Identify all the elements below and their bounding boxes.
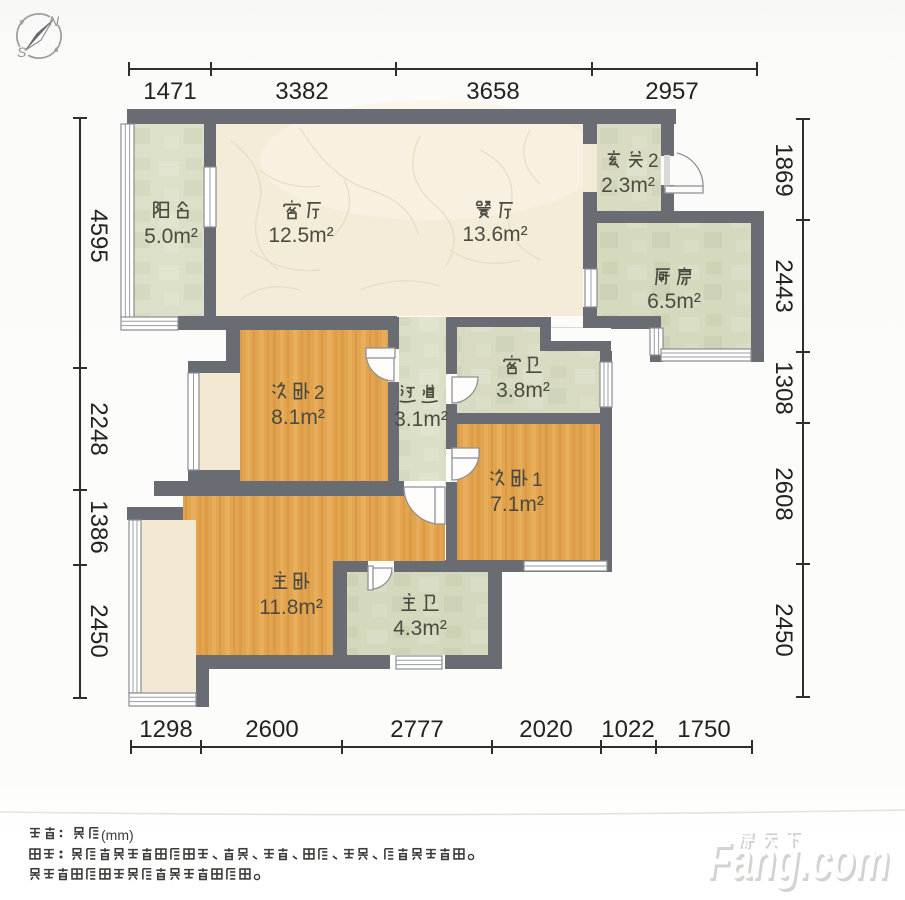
svg-text:6.5m²: 6.5m² [647,290,701,313]
svg-text:3.1m²: 3.1m² [394,408,448,431]
svg-text:2443: 2443 [770,259,797,312]
svg-text:2957: 2957 [645,78,698,105]
svg-text:S: S [17,44,27,60]
svg-text:1308: 1308 [770,361,797,414]
svg-text:4595: 4595 [85,209,112,262]
svg-text:4.3m²: 4.3m² [393,617,447,640]
svg-text:1869: 1869 [770,143,797,196]
svg-text:2777: 2777 [390,716,443,743]
svg-text:1386: 1386 [85,500,112,553]
svg-text:13.6m²: 13.6m² [462,223,527,246]
svg-text:2600: 2600 [245,716,298,743]
svg-text:3658: 3658 [466,78,519,105]
svg-text:2450: 2450 [85,604,112,657]
svg-text:3.8m²: 3.8m² [496,379,550,402]
svg-text:2.3m²: 2.3m² [601,174,655,197]
svg-text:11.8m²: 11.8m² [259,596,323,619]
svg-text:8.1m²: 8.1m² [271,406,325,429]
svg-text:2608: 2608 [770,467,797,520]
svg-text:1750: 1750 [677,716,730,743]
svg-text:2: 2 [648,151,659,172]
svg-text:N: N [49,13,60,29]
svg-text:Fang.com: Fang.com [707,830,889,890]
svg-text:1471: 1471 [143,78,196,105]
svg-text:2248: 2248 [85,402,112,455]
svg-text:1298: 1298 [139,716,192,743]
svg-text:3382: 3382 [275,78,328,105]
svg-text:1: 1 [532,470,543,491]
svg-text:12.5m²: 12.5m² [268,224,333,247]
svg-text:1022: 1022 [601,716,654,743]
svg-text:5.0m²: 5.0m² [144,225,198,248]
svg-text:7.1m²: 7.1m² [490,493,544,516]
svg-text:2020: 2020 [519,716,572,743]
svg-text:(mm): (mm) [101,827,134,843]
svg-text:2: 2 [314,383,325,404]
svg-text:2450: 2450 [770,603,797,656]
